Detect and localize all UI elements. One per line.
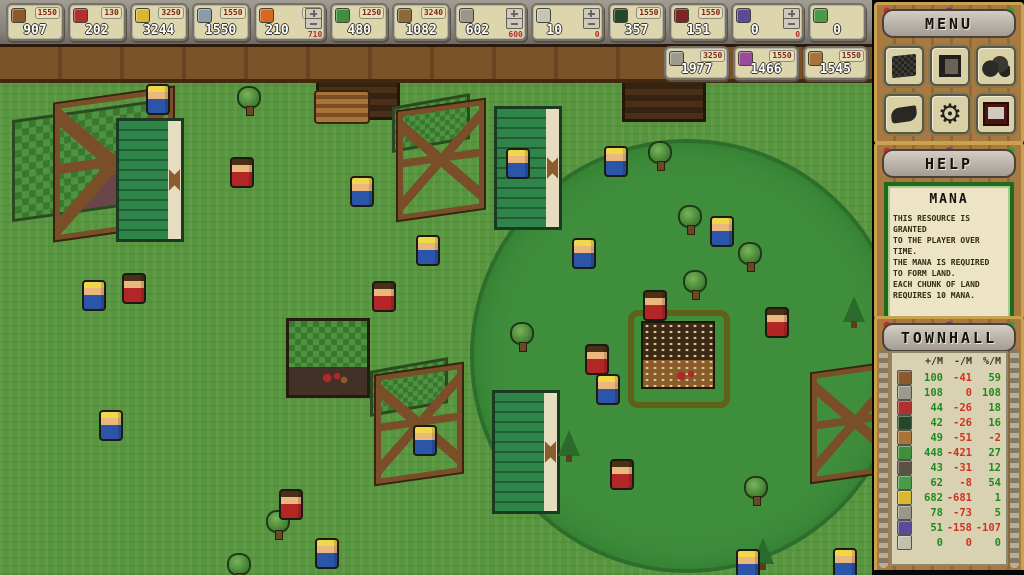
- resource-slot-bricks: 602600: [454, 3, 527, 41]
- gold-icon: [135, 8, 150, 23]
- resource-slot-fire: 420210710: [254, 3, 327, 41]
- gold-icon: [897, 490, 912, 505]
- meat-icon: [73, 8, 88, 23]
- resource-cap: 1550: [769, 50, 794, 62]
- grapes-icon: [897, 520, 912, 535]
- bricks-icon: [897, 505, 912, 520]
- townhall-row-gold: 682-6811: [895, 490, 1003, 505]
- townhall-row-pine: 42-2616: [895, 415, 1003, 430]
- frame-sm[interactable]: [398, 100, 484, 220]
- resource-slot-grapes: 00: [731, 3, 804, 41]
- stepper-minus-button[interactable]: [584, 19, 599, 28]
- townhall-row-stone: 1080108: [895, 385, 1003, 400]
- resource-cap: 1550: [839, 50, 864, 62]
- help-text-line: TO THE PLAYER OVER TIME.: [893, 235, 1005, 257]
- resource-cap: 3250: [158, 7, 183, 19]
- villager-blue[interactable]: [833, 548, 857, 575]
- resource-cap: 1250: [359, 7, 384, 19]
- wood-icon: [897, 370, 912, 385]
- stat-gain: 43: [914, 462, 943, 474]
- resource-slot-paper: 100: [531, 3, 604, 41]
- leather-icon: [897, 430, 912, 445]
- villager-red[interactable]: [122, 273, 146, 304]
- townhall-row-meat: 44-2618: [895, 400, 1003, 415]
- villager-blue[interactable]: [710, 216, 734, 247]
- villager-red[interactable]: [585, 344, 609, 375]
- help-text-line: REQUIRES 10 MANA.: [893, 290, 1005, 301]
- villager-red[interactable]: [372, 281, 396, 312]
- stat-pct: 5: [972, 507, 1001, 519]
- townhall-row-grapes: 51-158-107: [895, 520, 1003, 535]
- sidebar: MENU ⚙ HELP MANA THIS RESOURCE IS GRANTE…: [872, 0, 1024, 575]
- menu-button-grid: ⚙: [877, 46, 1021, 134]
- stat-gain: 682: [914, 492, 943, 504]
- stat-loss: -26: [943, 417, 972, 429]
- resource-value: 0: [810, 23, 864, 38]
- help-text-line: THIS RESOURCE IS GRANTED: [893, 213, 1005, 235]
- resource-slot-wood: 1550907: [6, 3, 64, 41]
- gear-icon: ⚙: [938, 101, 962, 128]
- tree: [683, 270, 707, 300]
- villager-blue[interactable]: [99, 410, 123, 441]
- menu-panel: MENU ⚙: [874, 2, 1024, 144]
- resource-slot-meat: 130202: [68, 3, 126, 41]
- villager-blue[interactable]: [350, 176, 374, 207]
- stat-gain: 51: [914, 522, 943, 534]
- stat-loss: -8: [943, 477, 972, 489]
- tree: [237, 86, 261, 116]
- resource-stepper: [583, 8, 600, 29]
- resource-value: 1550: [194, 23, 248, 38]
- stat-gain: 78: [914, 507, 943, 519]
- herbs-icon: [897, 445, 912, 460]
- resource-cap: 3240: [421, 7, 446, 19]
- villager-red[interactable]: [610, 459, 634, 490]
- townhall-row-herbs: 448-42127: [895, 445, 1003, 460]
- resource-cap: 3250: [700, 50, 725, 62]
- resource-stepper: [506, 8, 523, 29]
- stat-loss: -41: [943, 372, 972, 384]
- townhall-header: TOWNHALL: [882, 323, 1016, 352]
- resource-row-2: 325019771550146615501545: [664, 46, 868, 80]
- help-content-box: MANA THIS RESOURCE IS GRANTEDTO THE PLAY…: [884, 182, 1014, 322]
- stat-loss: 0: [943, 537, 972, 549]
- tree: [738, 242, 762, 272]
- pine-icon: [897, 415, 912, 430]
- resource-value: 0: [733, 23, 776, 38]
- stat-pct: -2: [972, 432, 1001, 444]
- bricks-icon: [459, 8, 474, 23]
- villager-blue[interactable]: [736, 549, 760, 575]
- help-topic-title: MANA: [893, 192, 1005, 207]
- villager-blue[interactable]: [604, 146, 628, 177]
- icon-column-spacer: [897, 356, 914, 367]
- stat-pct: 12: [972, 462, 1001, 474]
- stepper-minus-button[interactable]: [507, 19, 522, 28]
- column-loss: -/M: [943, 356, 972, 367]
- villager-blue[interactable]: [413, 425, 437, 456]
- villager-blue[interactable]: [82, 280, 106, 311]
- resource-slot-leather: 15501545: [803, 46, 868, 80]
- help-text-line: THE MANA IS REQUIRED: [893, 257, 1005, 268]
- resource-cap: 1550: [35, 7, 60, 19]
- dark-lodge[interactable]: [622, 80, 706, 122]
- villager-red[interactable]: [230, 157, 254, 188]
- stepper-value: 600: [508, 30, 522, 39]
- column-gain: +/M: [914, 356, 943, 367]
- stat-gain: 0: [914, 537, 943, 549]
- stat-gain: 42: [914, 417, 943, 429]
- stat-gain: 448: [914, 447, 943, 459]
- tree: [678, 205, 702, 235]
- resource-slot-tools: 15501550: [192, 3, 250, 41]
- resource-value: 480: [332, 23, 386, 38]
- stat-pct: 16: [972, 417, 1001, 429]
- resource-slot-fence: 32401082: [392, 3, 450, 41]
- chain-decoration-right: [1010, 349, 1019, 568]
- help-text-line: TO FORM LAND.: [893, 268, 1005, 279]
- resource-stepper: [305, 8, 322, 29]
- stat-pct: 27: [972, 447, 1001, 459]
- resource-cap: 1550: [698, 7, 723, 19]
- pine-icon: [613, 8, 628, 23]
- blank-icon: [897, 535, 912, 550]
- green-roof-house[interactable]: [286, 318, 370, 398]
- stepper-plus-button[interactable]: [584, 9, 599, 19]
- game-map[interactable]: [0, 80, 872, 575]
- villager-blue[interactable]: [572, 238, 596, 269]
- resource-value: 3244: [132, 23, 186, 38]
- stat-pct: -107: [972, 522, 1001, 534]
- construction-icon: [939, 55, 961, 77]
- stepper-minus-button[interactable]: [784, 19, 799, 28]
- stepper-plus-button[interactable]: [306, 9, 321, 19]
- chain-decoration-left: [879, 349, 888, 568]
- pine: [558, 430, 580, 462]
- resource-slot-pine: 1550357: [608, 3, 666, 41]
- resource-value: 1545: [805, 62, 866, 77]
- cabbage-icon: [897, 475, 912, 490]
- stepper-value: 710: [308, 30, 322, 39]
- townhall-stats-table: +/M -/M %/M 100-4159108010844-261842-261…: [890, 351, 1008, 566]
- stat-loss: -158: [943, 522, 972, 534]
- red-tools: [322, 370, 348, 386]
- resource-row-1: 1550907130202325032441550155042021071012…: [6, 3, 866, 41]
- resource-value: 1977: [666, 62, 727, 77]
- stat-loss: -73: [943, 507, 972, 519]
- stat-pct: 0: [972, 537, 1001, 549]
- resource-value: 1082: [394, 23, 448, 38]
- tree: [510, 322, 534, 352]
- resource-slot-stone: 32501977: [664, 46, 729, 80]
- resource-value: 151: [671, 23, 725, 38]
- townhall-row-wood: 100-4159: [895, 370, 1003, 385]
- stat-gain: 108: [914, 387, 943, 399]
- stat-loss: -51: [943, 432, 972, 444]
- green-panel[interactable]: [492, 390, 560, 514]
- menu-button-construction[interactable]: [930, 46, 970, 86]
- berries-icon: [674, 8, 689, 23]
- townhall-row-wall: 43-3112: [895, 460, 1003, 475]
- stat-loss: -31: [943, 462, 972, 474]
- townhall-row-bricks: 78-735: [895, 505, 1003, 520]
- stepper-minus-button[interactable]: [306, 19, 321, 28]
- tree: [648, 141, 672, 171]
- townhall-row-leather: 49-51-2: [895, 430, 1003, 445]
- resource-slot-amethyst: 15501466: [733, 46, 798, 80]
- paper-icon: [536, 8, 551, 23]
- resource-value: 907: [8, 23, 62, 38]
- stat-pct: 108: [972, 387, 1001, 399]
- resource-slot-herbs: 1250480: [330, 3, 388, 41]
- menu-button-save[interactable]: [976, 94, 1016, 134]
- log-pile[interactable]: [314, 90, 370, 124]
- villager-red[interactable]: [643, 290, 667, 321]
- stat-pct: 54: [972, 477, 1001, 489]
- townhall-table-header: +/M -/M %/M: [895, 355, 1003, 370]
- resource-slot-cabbage: 0: [808, 3, 866, 41]
- tree: [744, 476, 768, 506]
- menu-button-resources[interactable]: [976, 46, 1016, 86]
- pine: [843, 296, 865, 328]
- stepper-value: 0: [795, 30, 800, 39]
- tools-icon: [197, 8, 212, 23]
- plow-icon: [890, 105, 918, 123]
- resource-cap: 130: [101, 7, 121, 19]
- grapes-icon: [736, 8, 751, 23]
- column-pct: %/M: [972, 356, 1001, 367]
- game-screen: 1550907130202325032441550155042021071012…: [0, 0, 1024, 575]
- stat-loss: -421: [943, 447, 972, 459]
- stepper-plus-button[interactable]: [507, 9, 522, 19]
- resource-value: 210: [256, 23, 299, 38]
- tree: [227, 553, 251, 575]
- blueprint-icon: [892, 54, 916, 79]
- resource-value: 10: [533, 23, 576, 38]
- resource-value: 1466: [735, 62, 796, 77]
- villager-blue[interactable]: [416, 235, 440, 266]
- stat-pct: 1: [972, 492, 1001, 504]
- stat-loss: 0: [943, 387, 972, 399]
- resource-bar: 1550907130202325032441550155042021071012…: [0, 0, 872, 80]
- villager-blue[interactable]: [596, 374, 620, 405]
- resource-stepper: [783, 8, 800, 29]
- save-icon: [983, 102, 1009, 126]
- menu-header: MENU: [882, 9, 1016, 38]
- stone-icon: [897, 385, 912, 400]
- stat-loss: -26: [943, 402, 972, 414]
- townhall-rows: 100-4159108010844-261842-261649-51-2448-…: [895, 370, 1003, 550]
- fence-icon: [397, 8, 412, 23]
- stat-pct: 59: [972, 372, 1001, 384]
- menu-button-settings[interactable]: ⚙: [930, 94, 970, 134]
- villager-red[interactable]: [765, 307, 789, 338]
- help-panel: HELP MANA THIS RESOURCE IS GRANTEDTO THE…: [874, 142, 1024, 320]
- villager-blue[interactable]: [506, 148, 530, 179]
- menu-button-tools[interactable]: [884, 94, 924, 134]
- wood-icon: [11, 8, 26, 23]
- resource-slot-berries: 1550151: [669, 3, 727, 41]
- resource-value: 602: [456, 23, 499, 38]
- menu-button-blueprints[interactable]: [884, 46, 924, 86]
- cabbage-icon: [813, 8, 828, 23]
- frame-sm[interactable]: [376, 364, 462, 484]
- villager-blue[interactable]: [146, 84, 170, 115]
- help-text-line: EACH CHUNK OF LAND: [893, 279, 1005, 290]
- townhall-sq[interactable]: [628, 310, 730, 408]
- stat-pct: 18: [972, 402, 1001, 414]
- red-tools: [676, 368, 702, 384]
- wall-icon: [897, 460, 912, 475]
- townhall-panel: TOWNHALL +/M -/M %/M 100-4159108010844-2…: [874, 316, 1024, 570]
- stepper-plus-button[interactable]: [784, 9, 799, 19]
- stat-gain: 44: [914, 402, 943, 414]
- villager-blue[interactable]: [315, 538, 339, 569]
- fire-icon: [259, 8, 274, 23]
- stat-gain: 100: [914, 372, 943, 384]
- help-header: HELP: [882, 149, 1016, 178]
- stat-loss: -681: [943, 492, 972, 504]
- meat-icon: [897, 400, 912, 415]
- frame-sm[interactable]: [812, 362, 872, 482]
- resource-cap: 1550: [636, 7, 661, 19]
- resource-value: 357: [610, 23, 664, 38]
- stat-gain: 49: [914, 432, 943, 444]
- townhall-row-cabbage: 62-854: [895, 475, 1003, 490]
- villager-red[interactable]: [279, 489, 303, 520]
- resource-value: 202: [70, 23, 124, 38]
- stat-gain: 62: [914, 477, 943, 489]
- herbs-icon: [335, 8, 350, 23]
- stepper-value: 0: [595, 30, 600, 39]
- green-panel[interactable]: [116, 118, 184, 242]
- townhall-row-blank: 000: [895, 535, 1003, 550]
- help-text: THIS RESOURCE IS GRANTEDTO THE PLAYER OV…: [893, 213, 1005, 301]
- resource-cap: 1550: [220, 7, 245, 19]
- resource-slot-gold: 32503244: [130, 3, 188, 41]
- rocks-icon: [982, 55, 1010, 77]
